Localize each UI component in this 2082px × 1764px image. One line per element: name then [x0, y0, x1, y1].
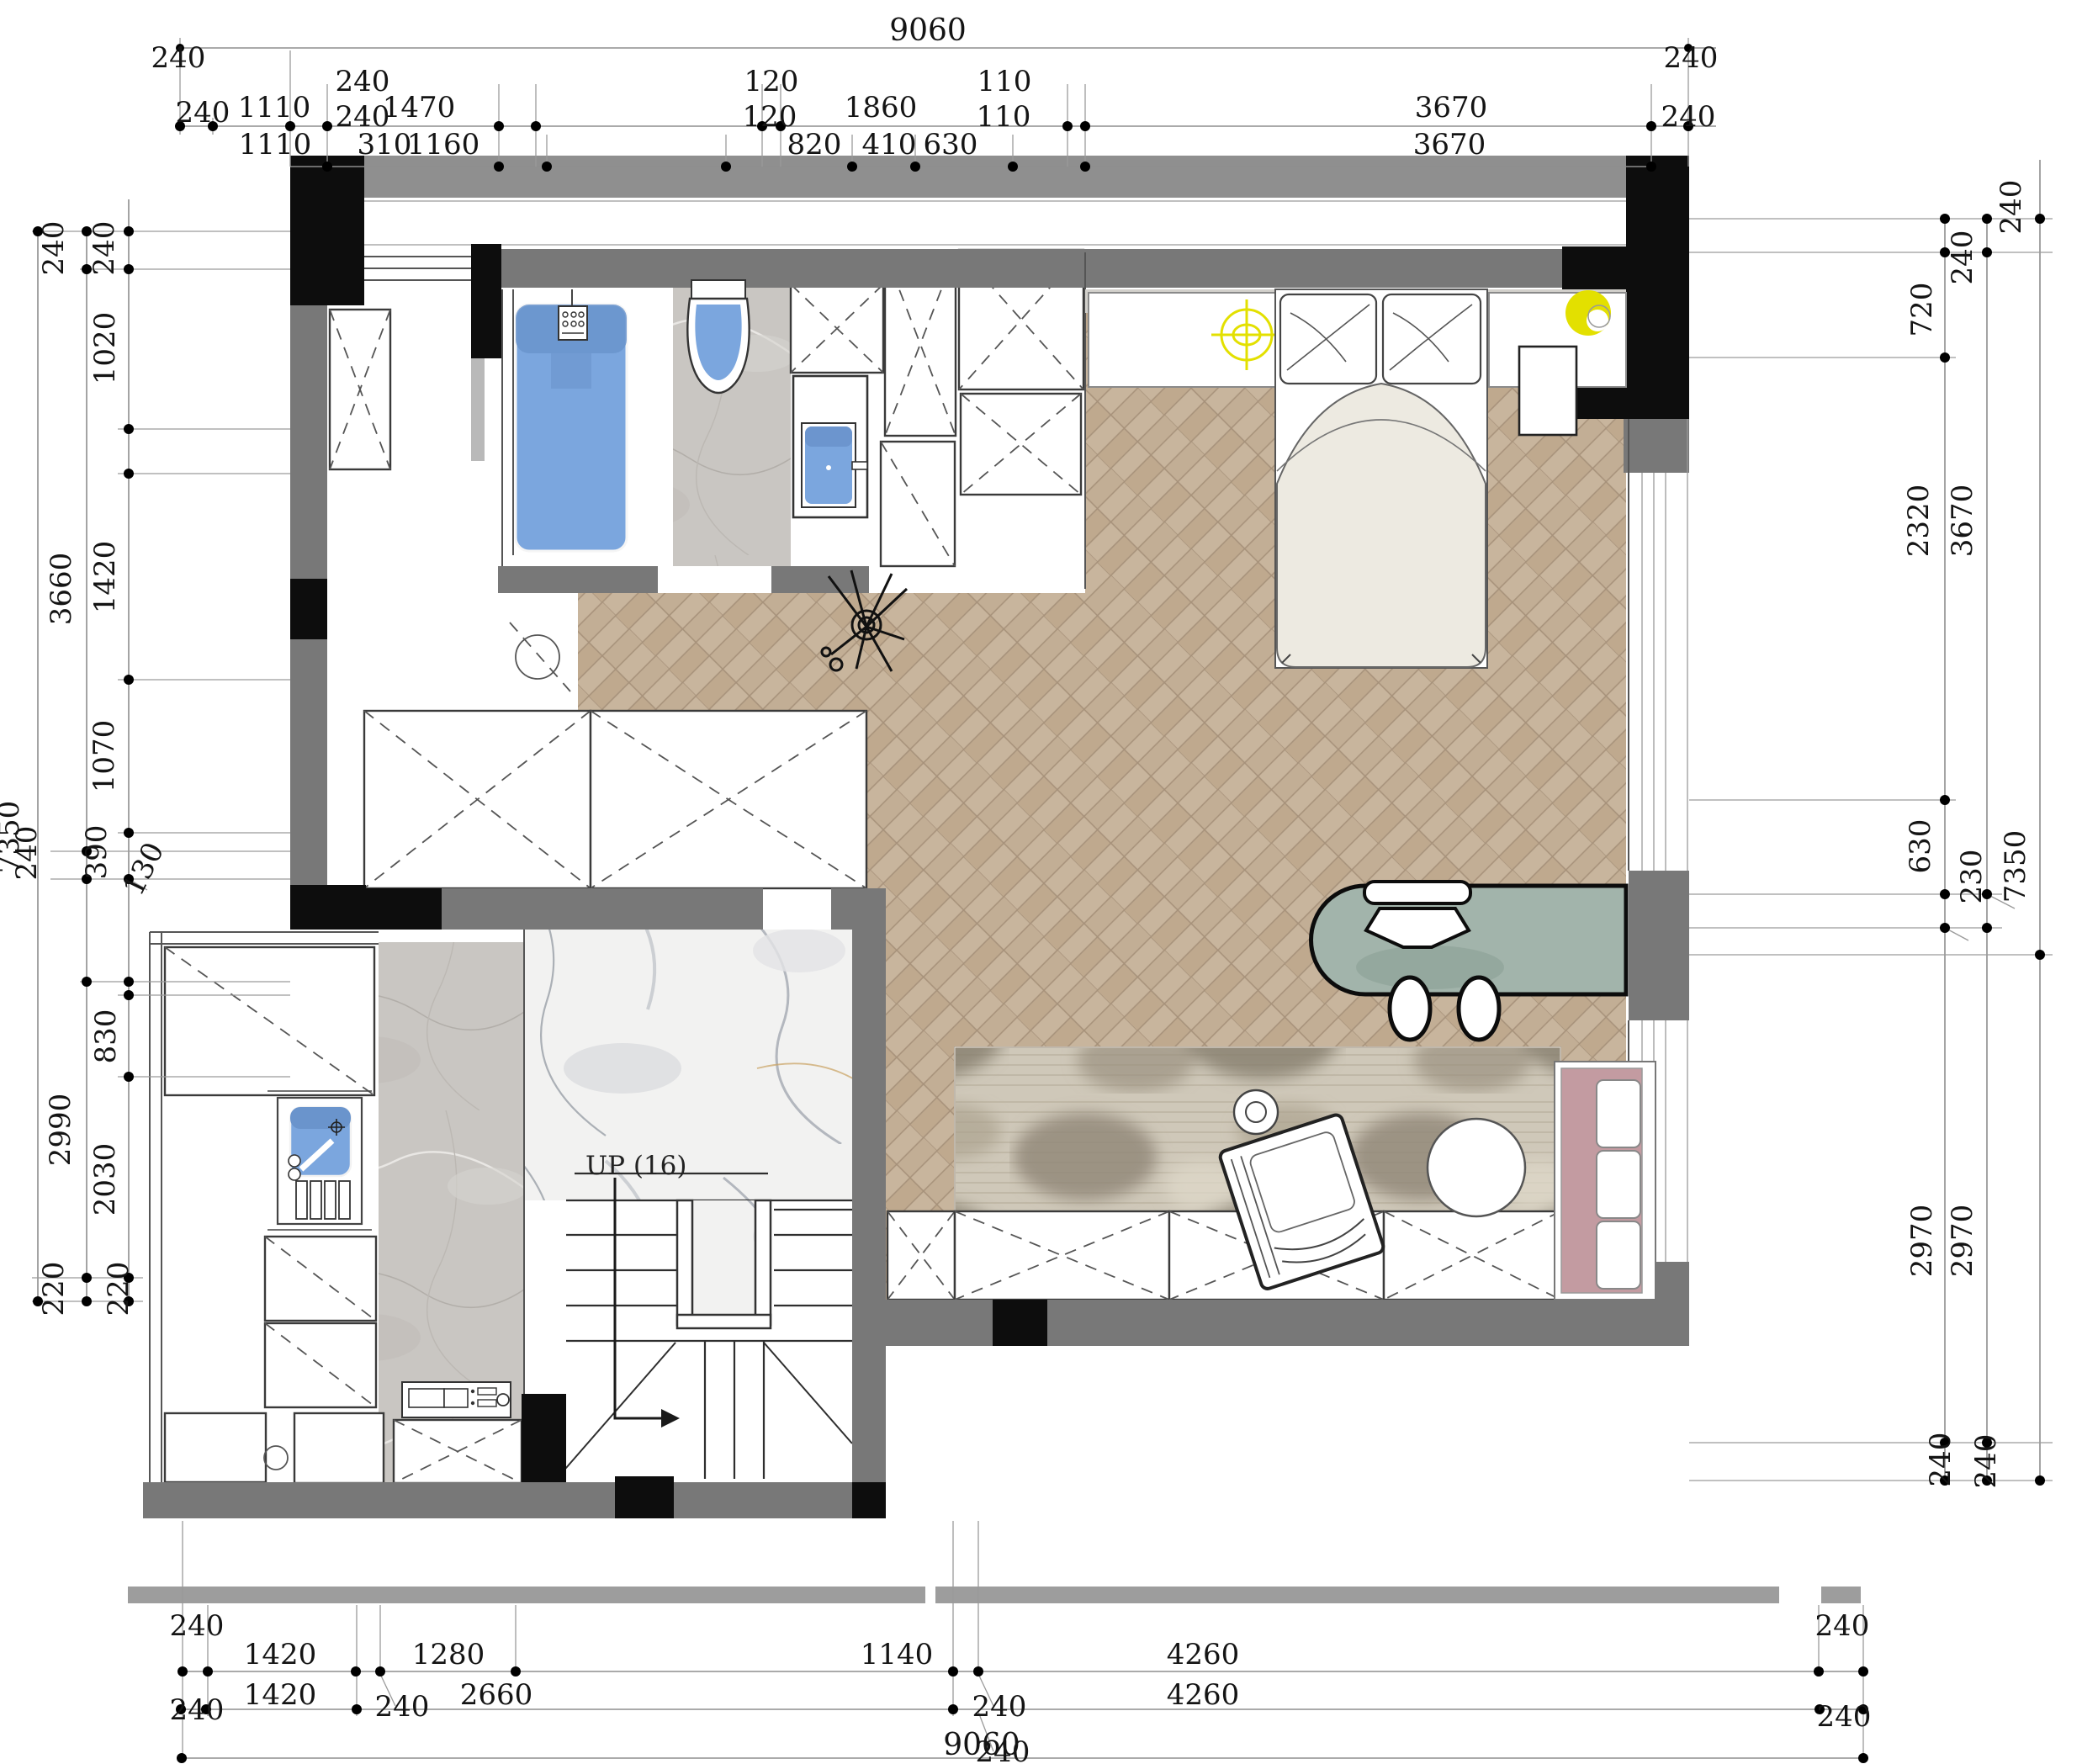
stool: [1390, 977, 1430, 1040]
dim-label: 240: [1817, 1700, 1872, 1734]
floor-drain: [264, 1446, 288, 1470]
dim-label: 1860: [845, 91, 918, 124]
dim-label: 110: [977, 65, 1032, 98]
wall-lamp-symbol: [1565, 290, 1611, 336]
living-bottom-cabinet: [1384, 1211, 1560, 1300]
kitchen-cabinet: [265, 1323, 376, 1407]
living-bottom-cabinet: [955, 1211, 1169, 1300]
dim-label: 1470: [383, 91, 456, 124]
sofa-cushion: [1597, 1151, 1640, 1218]
dim-label: 240: [1995, 180, 2028, 235]
dim-label: 1110: [239, 128, 312, 162]
desk-chair: [1364, 882, 1470, 947]
dim-label: 1420: [88, 541, 122, 614]
kitchen-base-box: [294, 1413, 384, 1483]
wall-east-desk-block: [1629, 871, 1689, 1020]
sofa: [1555, 1062, 1656, 1300]
wall-west-pier-black: [290, 579, 327, 639]
dim-label: 230: [1955, 850, 1989, 904]
dim-label: 240: [1664, 41, 1719, 75]
dim-label: 2660: [460, 1678, 533, 1712]
stair-north-wall-stub: [831, 888, 886, 930]
dim-label: 240: [170, 1693, 225, 1727]
sofa-cushion: [1597, 1080, 1640, 1147]
dim-label: 240: [10, 826, 44, 881]
dim-label: 240: [37, 221, 71, 276]
hall-storage-box: [591, 711, 866, 888]
wall-corner-nw-black: [290, 156, 364, 305]
pillow: [1280, 294, 1376, 384]
tub-shadow: [551, 353, 591, 389]
bath-south-wall-a: [498, 566, 658, 593]
wall-east-stub: [1624, 419, 1689, 473]
dim-label: 240: [151, 41, 206, 75]
hall-storage-box: [364, 711, 591, 888]
dim-label: 2970: [1905, 1205, 1939, 1278]
vanity-sink: [793, 376, 867, 517]
dim-label: 1420: [244, 1678, 317, 1712]
pillow: [1383, 294, 1481, 384]
dim-label: 1280: [412, 1638, 485, 1671]
dimensions-bottom: 240 240 1420 1280 1140 4260 240 240 1420…: [170, 1521, 1872, 1764]
bathtub: [513, 289, 627, 555]
wall-bottom-right-pier-black: [993, 1300, 1047, 1346]
window-top-left: [364, 249, 471, 288]
kitchen-cabinet: [265, 1237, 376, 1321]
dim-label: 240: [972, 1690, 1027, 1724]
floor-plan-drawing: UP (16): [0, 0, 2082, 1764]
kitchen-appliance-cabinet: [394, 1420, 522, 1483]
vanity-handle: [852, 462, 867, 469]
dim-label: 1420: [244, 1638, 317, 1671]
dim-label: 1140: [861, 1638, 934, 1671]
dim-label: 4260: [1167, 1638, 1240, 1671]
dim-label: 240: [1946, 230, 1979, 285]
dim-label: 3670: [1413, 128, 1486, 162]
dim-label: 3660: [45, 553, 78, 626]
dim-label: 390: [80, 825, 114, 880]
toilet: [687, 280, 749, 393]
stair-east-wall: [852, 930, 886, 1482]
dim-label: 3670: [1946, 485, 1979, 558]
closet-cell: [961, 394, 1081, 495]
dim-label: 410: [862, 128, 917, 162]
dim-label: 240: [1924, 1433, 1958, 1487]
wall-sw-bath-black: [290, 885, 366, 930]
dim-label: 310: [358, 128, 412, 162]
stair-well-wall-right: [755, 1200, 771, 1325]
bed: [1275, 289, 1487, 668]
shower-head: [559, 306, 587, 340]
dim-label: 1160: [407, 128, 480, 162]
nightstand: [1519, 347, 1576, 435]
window-east-upper: [1629, 419, 1687, 871]
stair-well-wall-bottom: [677, 1315, 771, 1328]
dim-label: 2320: [1902, 485, 1936, 558]
dim-label: 220: [102, 1262, 135, 1316]
laundry-cell: [330, 310, 390, 469]
kitchen-upper-cabinet: [165, 947, 374, 1095]
cooktop-control-panel: [402, 1382, 511, 1417]
dim-label: 720: [1905, 283, 1939, 337]
dim-label: 1020: [88, 312, 122, 385]
stair-north-wall-gray: [442, 888, 763, 930]
dim-label: 130: [117, 837, 171, 901]
stair-well-marble: [692, 1200, 755, 1315]
kitchen-sink-unit: [268, 1091, 372, 1230]
stairs-up-label: UP (16): [585, 1151, 686, 1181]
dim-label: 240: [87, 221, 121, 276]
dim-label: 9060: [889, 13, 967, 48]
dim-label: 3670: [1415, 91, 1488, 124]
wall-north-main: [501, 249, 1604, 288]
dim-label: 2990: [44, 1094, 77, 1167]
lower-outline-band: [128, 1587, 1861, 1603]
dim-label: 120: [744, 65, 799, 98]
dim-label: 2030: [88, 1143, 122, 1216]
stair-well-wall-left: [677, 1200, 692, 1325]
wall-bottom-left-band: [143, 1482, 886, 1518]
dim-label: 240: [1815, 1609, 1870, 1643]
dim-label: 240: [1969, 1434, 2003, 1489]
dim-label: 240: [1661, 100, 1716, 134]
wall-bottom-stair-black: [852, 1482, 886, 1518]
dim-label: 7350: [1999, 830, 2032, 903]
coffee-table: [1428, 1119, 1525, 1216]
stair-landing-marble: [524, 930, 852, 1200]
dimensions-left: 240 240 1020 3660 1420 1070 7350 240 390…: [0, 199, 290, 1316]
staircase: UP (16): [560, 1151, 852, 1482]
wall-bottom-pier-black: [615, 1476, 674, 1518]
living-bottom-cabinet: [887, 1211, 955, 1300]
dim-label: 240: [336, 65, 390, 98]
dim-label: 220: [37, 1262, 71, 1316]
closet-cell: [791, 284, 883, 373]
dim-label: 830: [89, 1009, 123, 1064]
dim-label: 630: [924, 128, 978, 162]
dim-label: 2970: [1946, 1205, 1979, 1278]
dimensions-right: 240 240 720 2320 3670 630 230 7350 2970 …: [1689, 160, 2053, 1488]
closet-cell: [881, 442, 955, 566]
bath-door-swing: [510, 622, 570, 691]
dim-label: 110: [977, 100, 1031, 134]
wall-finish-strip: [471, 358, 485, 461]
dim-label: 630: [1904, 819, 1937, 874]
dim-label: 820: [787, 128, 842, 162]
wall-pier-black: [471, 244, 501, 358]
dim-label: 1110: [238, 91, 311, 124]
dim-label: 4260: [1167, 1678, 1240, 1712]
dimensions-top: 9060 240 240 240 120 110 240 1110 240 14…: [151, 13, 1719, 172]
stair-north-wall-black: [364, 888, 442, 930]
dim-label: 1070: [87, 720, 121, 793]
dim-label: 240: [375, 1690, 430, 1724]
side-cup: [1234, 1090, 1278, 1134]
dim-label: 240: [170, 1609, 225, 1643]
stool: [1459, 977, 1499, 1040]
sofa-cushion: [1597, 1221, 1640, 1289]
dim-label: 240: [176, 96, 230, 130]
stair-west-pier-black: [522, 1394, 566, 1486]
kitchen-base-box: [165, 1413, 266, 1482]
floor-plan-canvas: UP (16): [0, 0, 2082, 1764]
dim-label: 240: [976, 1735, 1030, 1764]
